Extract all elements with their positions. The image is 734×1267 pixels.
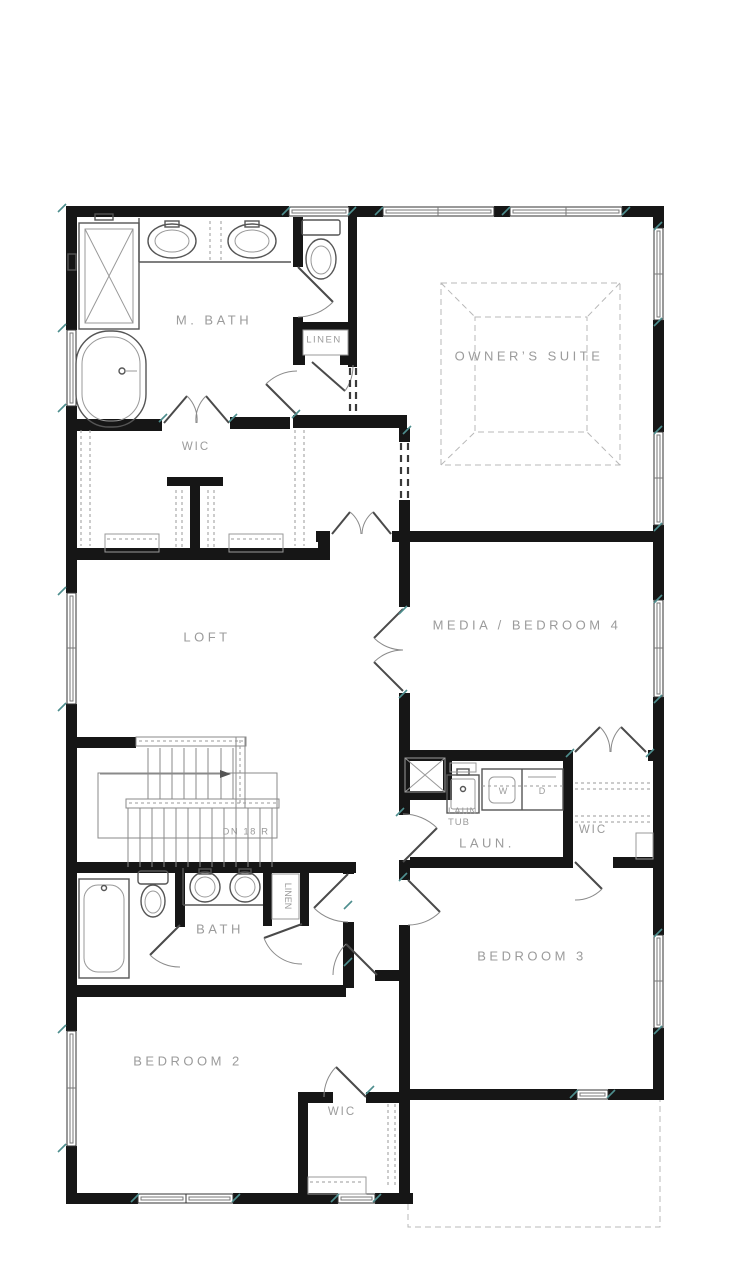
door-wic-bed3-to-bedroom3: [575, 862, 602, 900]
window-loft-left: [67, 593, 76, 704]
tub-master: [76, 331, 146, 427]
window-media-right: [654, 600, 663, 697]
room-label-owners-suite: OWNER’S SUITE: [455, 349, 604, 364]
door-bedroom2: [333, 944, 377, 975]
door-mbath-hall: [266, 371, 297, 415]
room-label-bath: BATH: [196, 922, 244, 937]
floor-plan-drawing: [0, 0, 734, 1267]
room-label-laundry: LAUN.: [459, 836, 515, 851]
window-bedroom2-bottom-2: [186, 1194, 233, 1203]
toilet-master: [302, 220, 340, 279]
window-bedroom2-left: [67, 1031, 76, 1146]
room-label-linen-master: LINEN: [306, 335, 341, 346]
floor-plan: M. BATH LINEN WIC OWNER’S SUITE LOFT MED…: [0, 0, 734, 1267]
window-owners-suite-right-2: [654, 432, 663, 525]
room-label-wic-bed2: WIC: [328, 1106, 356, 1118]
shower-master: [68, 214, 139, 329]
room-label-wic-master: WIC: [182, 441, 210, 453]
door-laundry: [403, 814, 437, 862]
door-owners-entry-double: [332, 512, 391, 534]
room-label-loft: LOFT: [183, 630, 230, 645]
door-bedroom3: [408, 880, 440, 925]
room-label-media-bedroom4: MEDIA / BEDROOM 4: [433, 618, 622, 633]
wic-bed3-shelving: [575, 783, 653, 859]
window-owners-suite-right-1: [654, 228, 663, 320]
dryer-label: D: [539, 786, 546, 796]
window-bedroom2-bottom-1: [138, 1194, 186, 1203]
stairs-label: DN 18 R: [223, 827, 270, 838]
room-label-bedroom3: BEDROOM 3: [477, 949, 587, 964]
window-wc: [289, 207, 349, 216]
door-water-closet: [298, 267, 333, 317]
roof-outline-dashed: [408, 1100, 660, 1227]
laundry-tub-label: LAUN. TUB: [448, 806, 481, 828]
window-mbath-left: [67, 330, 76, 406]
door-wic-master-double: [164, 396, 229, 423]
door-bath-entry: [314, 874, 348, 922]
room-label-linen-bath: LINEN: [283, 883, 293, 910]
vanity-master: [139, 218, 291, 262]
room-label-m-bath: M. BATH: [176, 313, 252, 328]
door-linen-bath: [264, 924, 302, 964]
washer-label: W: [499, 786, 508, 796]
room-label-wic-bed3: WIC: [579, 824, 607, 836]
window-owners-suite-top-1: [383, 207, 494, 216]
door-wic-bed3-double: [575, 727, 646, 752]
staircase: [98, 737, 279, 867]
door-linen-master: [312, 362, 353, 391]
door-bath-inner: [150, 925, 180, 967]
window-bedroom3-right: [654, 935, 663, 1028]
window-bedroom3-bottom: [577, 1090, 608, 1099]
door-media-double: [374, 609, 403, 691]
room-label-bedroom2: BEDROOM 2: [133, 1054, 243, 1069]
window-owners-suite-top-2: [510, 207, 622, 216]
window-wic-bed2: [338, 1194, 375, 1203]
tray-ceiling: [441, 283, 620, 465]
fixtures: [68, 214, 660, 1227]
stairs-down-arrow: [220, 770, 231, 778]
